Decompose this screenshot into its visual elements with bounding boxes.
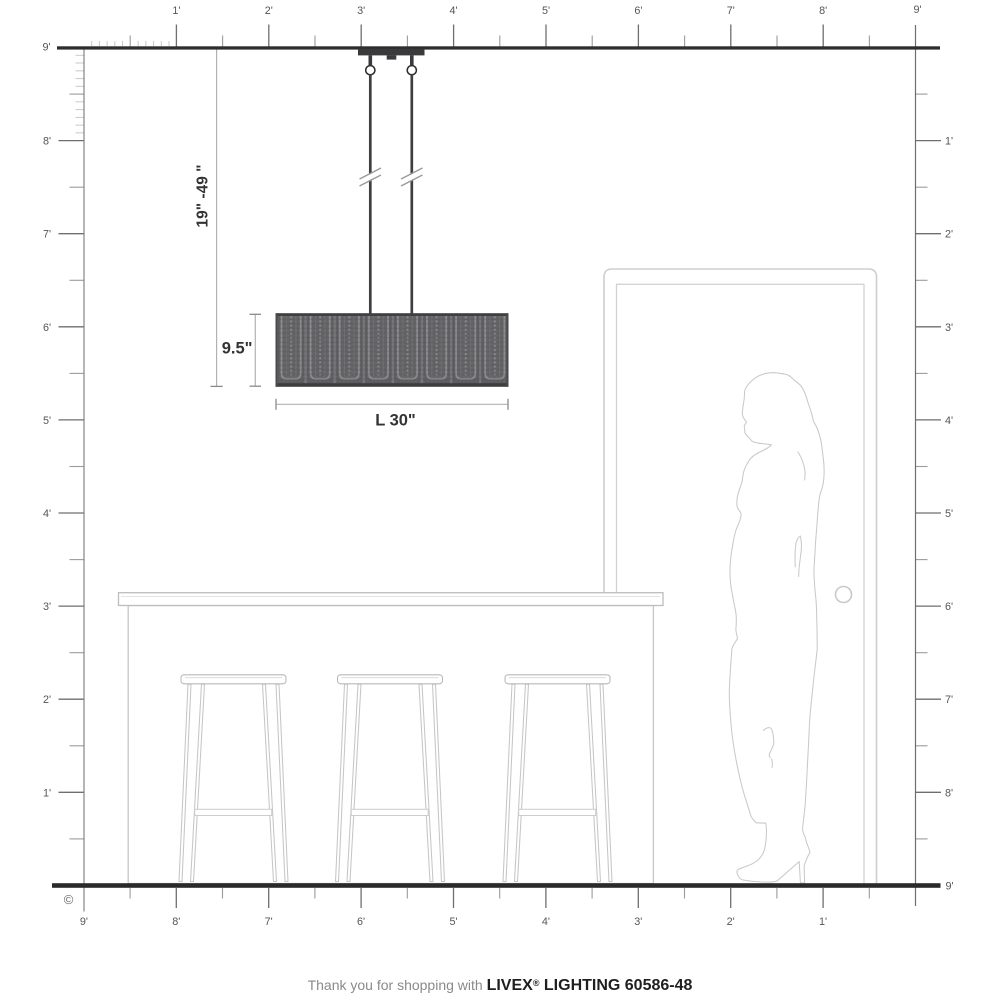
svg-text:5': 5' <box>542 5 550 17</box>
svg-text:6': 6' <box>945 601 953 613</box>
svg-text:6': 6' <box>43 322 51 334</box>
svg-text:1': 1' <box>43 787 51 799</box>
svg-text:1': 1' <box>172 5 180 17</box>
svg-text:6': 6' <box>634 5 642 17</box>
svg-text:2': 2' <box>945 229 953 241</box>
svg-text:2': 2' <box>727 916 735 928</box>
svg-text:19" -49 ": 19" -49 " <box>195 165 212 228</box>
svg-text:3': 3' <box>634 916 642 928</box>
svg-text:1': 1' <box>819 916 827 928</box>
svg-text:©: © <box>64 892 74 907</box>
svg-text:9': 9' <box>80 916 88 928</box>
svg-text:8': 8' <box>945 787 953 799</box>
svg-text:6': 6' <box>357 916 365 928</box>
svg-text:4': 4' <box>450 5 458 17</box>
svg-text:4': 4' <box>542 916 550 928</box>
svg-text:3': 3' <box>43 601 51 613</box>
svg-text:2': 2' <box>43 694 51 706</box>
svg-text:Thank you for shopping with LI: Thank you for shopping with LIVEX® LIGHT… <box>308 977 693 994</box>
svg-text:8': 8' <box>819 5 827 17</box>
svg-text:5': 5' <box>449 916 457 928</box>
svg-text:5': 5' <box>43 415 51 427</box>
svg-text:9': 9' <box>913 4 921 16</box>
svg-text:7': 7' <box>265 916 273 928</box>
svg-text:L 30": L 30" <box>375 412 416 430</box>
svg-text:9': 9' <box>946 881 954 893</box>
svg-text:8': 8' <box>43 136 51 148</box>
svg-text:9': 9' <box>42 42 50 54</box>
svg-text:7': 7' <box>945 694 953 706</box>
svg-text:9.5": 9.5" <box>222 340 253 358</box>
svg-text:8': 8' <box>172 916 180 928</box>
svg-text:4': 4' <box>43 508 51 520</box>
svg-text:4': 4' <box>945 415 953 427</box>
svg-text:3': 3' <box>945 322 953 334</box>
svg-text:1': 1' <box>945 136 953 148</box>
svg-text:7': 7' <box>43 229 51 241</box>
svg-text:5': 5' <box>945 508 953 520</box>
svg-text:7': 7' <box>727 5 735 17</box>
svg-text:3': 3' <box>357 5 365 17</box>
svg-text:2': 2' <box>265 5 273 17</box>
